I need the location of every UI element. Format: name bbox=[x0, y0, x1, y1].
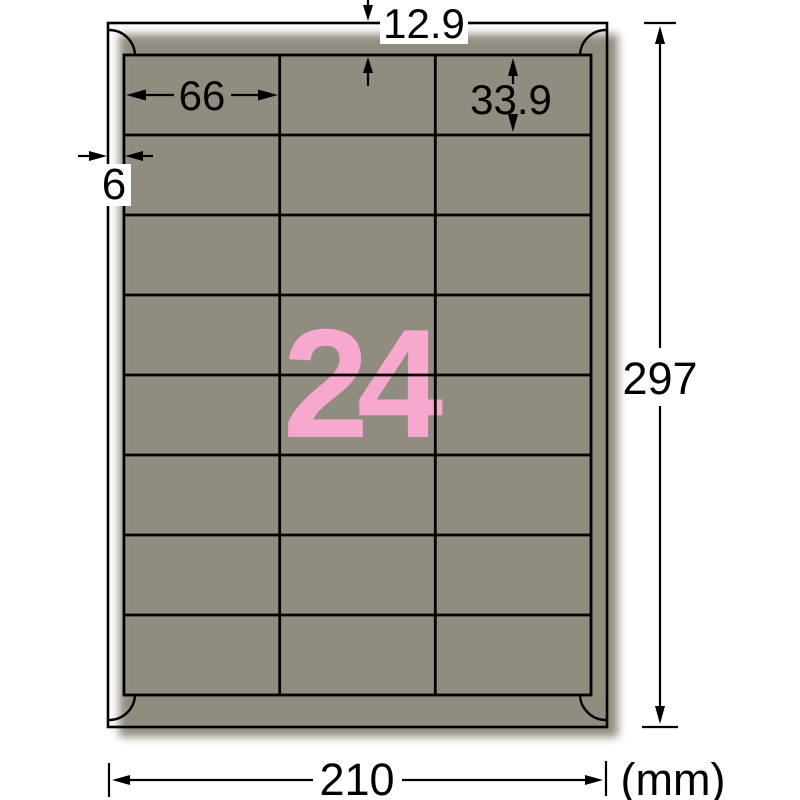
page-height-value: 297 bbox=[622, 353, 697, 404]
arrow-left-icon bbox=[112, 775, 130, 785]
label-sheet-diagram: 24 12.9 66 33.9 bbox=[0, 0, 800, 800]
arrow-down-icon bbox=[363, 5, 373, 21]
label-count: 24 bbox=[283, 297, 443, 470]
arrow-down-icon bbox=[655, 706, 665, 724]
top-margin-value: 12.9 bbox=[383, 0, 465, 47]
page-width-value: 210 bbox=[319, 754, 394, 800]
side-margin-value: 6 bbox=[102, 160, 126, 209]
arrow-right-icon bbox=[585, 775, 603, 785]
unit-label: (mm) bbox=[621, 754, 726, 800]
dim-page-width: 210 (mm) bbox=[109, 754, 725, 800]
dim-page-height: 297 bbox=[622, 23, 697, 727]
arrow-up-icon bbox=[655, 26, 665, 44]
label-height-value: 33.9 bbox=[470, 76, 552, 123]
label-width-value: 66 bbox=[179, 72, 226, 119]
